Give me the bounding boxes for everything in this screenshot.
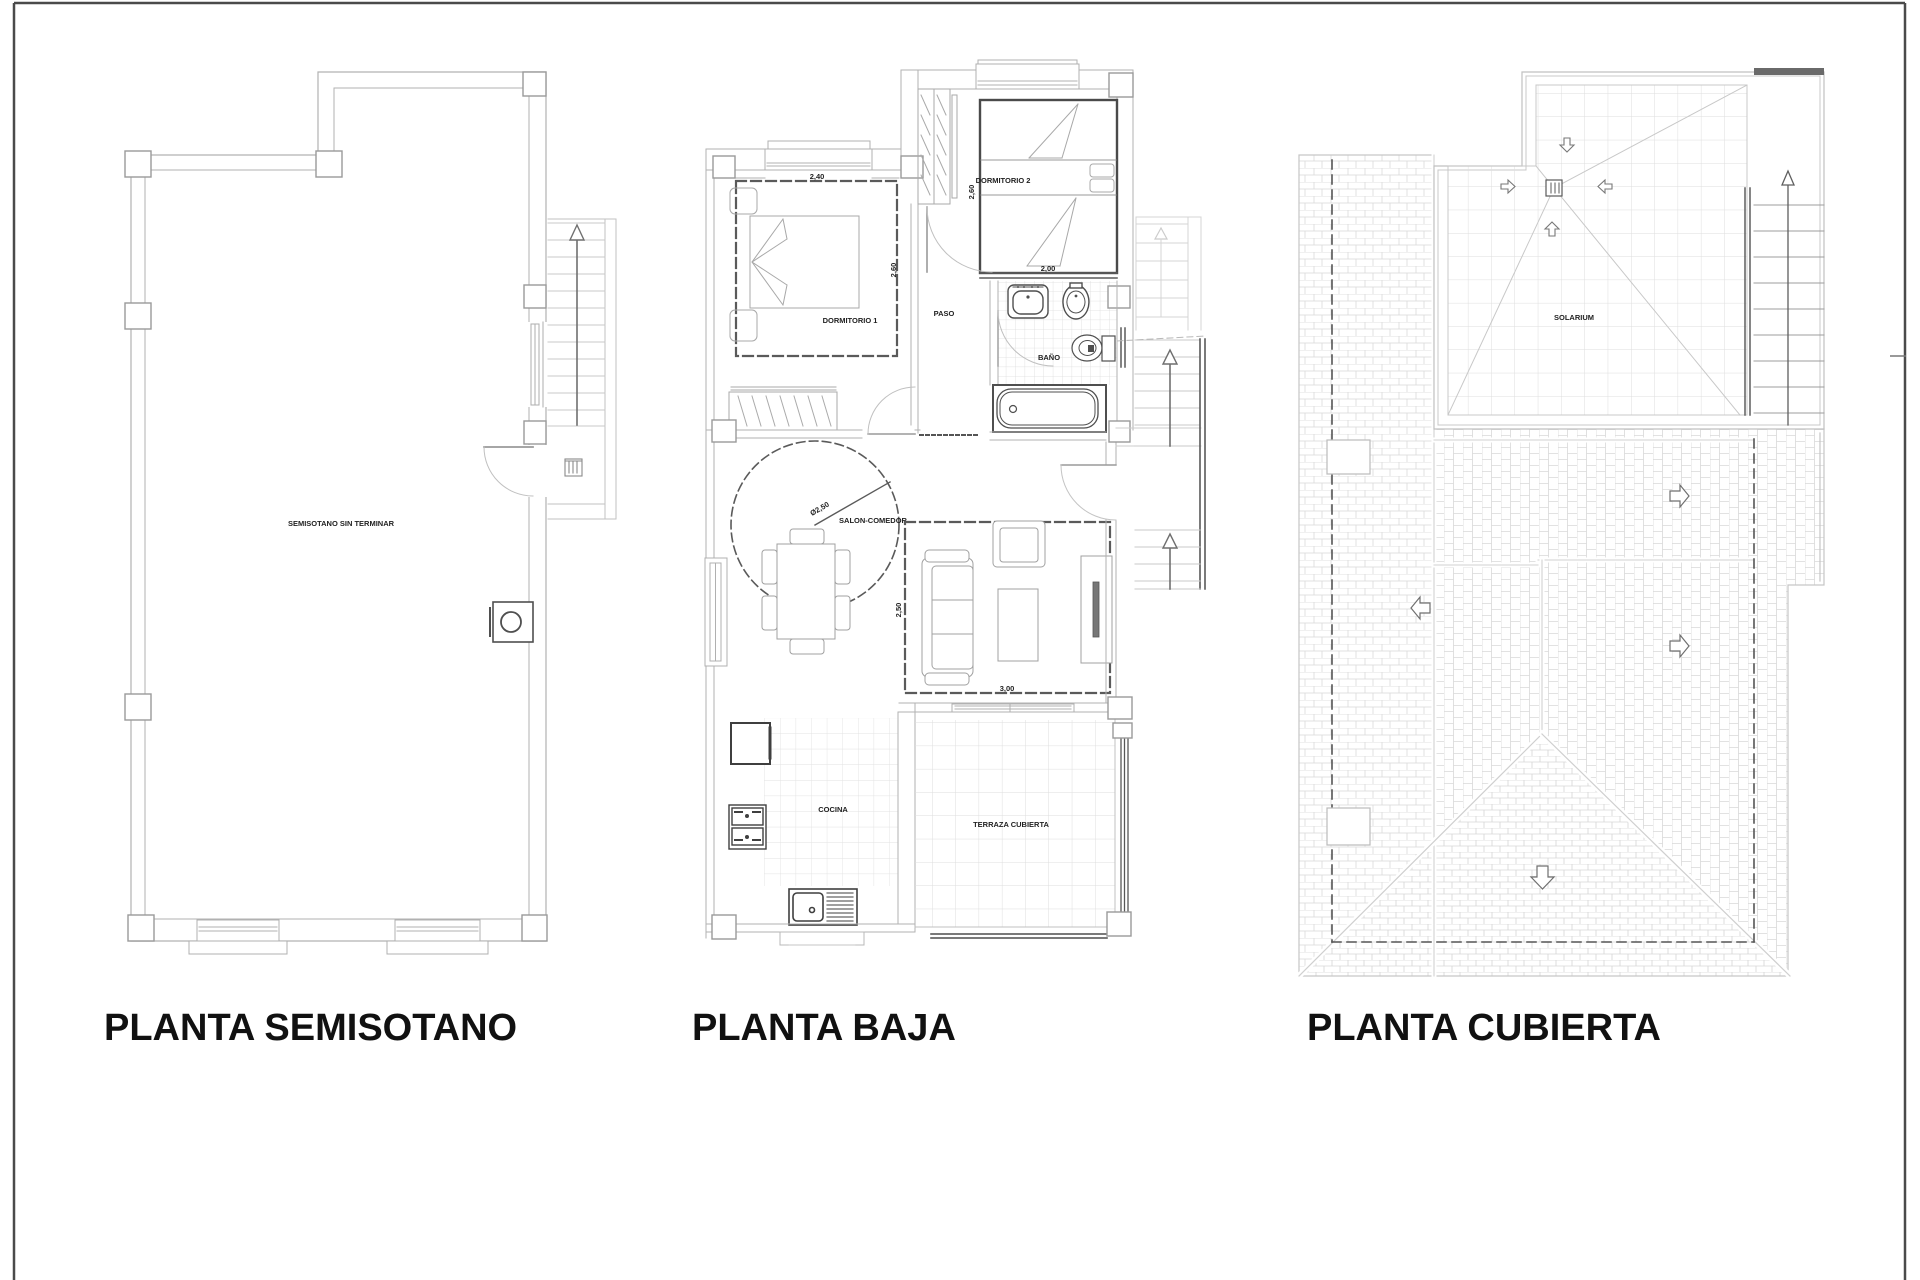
svg-text:SEMISOTANO SIN TERMINAR: SEMISOTANO SIN TERMINAR [288, 519, 395, 528]
svg-text:COCINA: COCINA [818, 805, 848, 814]
svg-text:PASO: PASO [934, 309, 955, 318]
svg-text:DORMITORIO 2: DORMITORIO 2 [976, 176, 1031, 185]
svg-text:PLANTA SEMISOTANO: PLANTA SEMISOTANO [104, 1007, 517, 1049]
svg-text:2,40: 2,40 [810, 172, 825, 181]
svg-text:BAÑO: BAÑO [1038, 353, 1060, 362]
svg-text:TERRAZA CUBIERTA: TERRAZA CUBIERTA [973, 820, 1049, 829]
svg-text:PLANTA CUBIERTA: PLANTA CUBIERTA [1307, 1007, 1661, 1049]
svg-text:2,00: 2,00 [1041, 264, 1056, 273]
svg-text:SOLARIUM: SOLARIUM [1554, 313, 1594, 322]
svg-text:3,00: 3,00 [1000, 684, 1015, 693]
svg-text:2,60: 2,60 [889, 263, 898, 278]
svg-text:2,50: 2,50 [894, 603, 903, 618]
svg-text:PLANTA BAJA: PLANTA BAJA [692, 1007, 956, 1049]
svg-text:SALON-COMEDOR: SALON-COMEDOR [839, 516, 907, 525]
svg-text:DORMITORIO 1: DORMITORIO 1 [823, 316, 878, 325]
svg-text:2,60: 2,60 [967, 185, 976, 200]
